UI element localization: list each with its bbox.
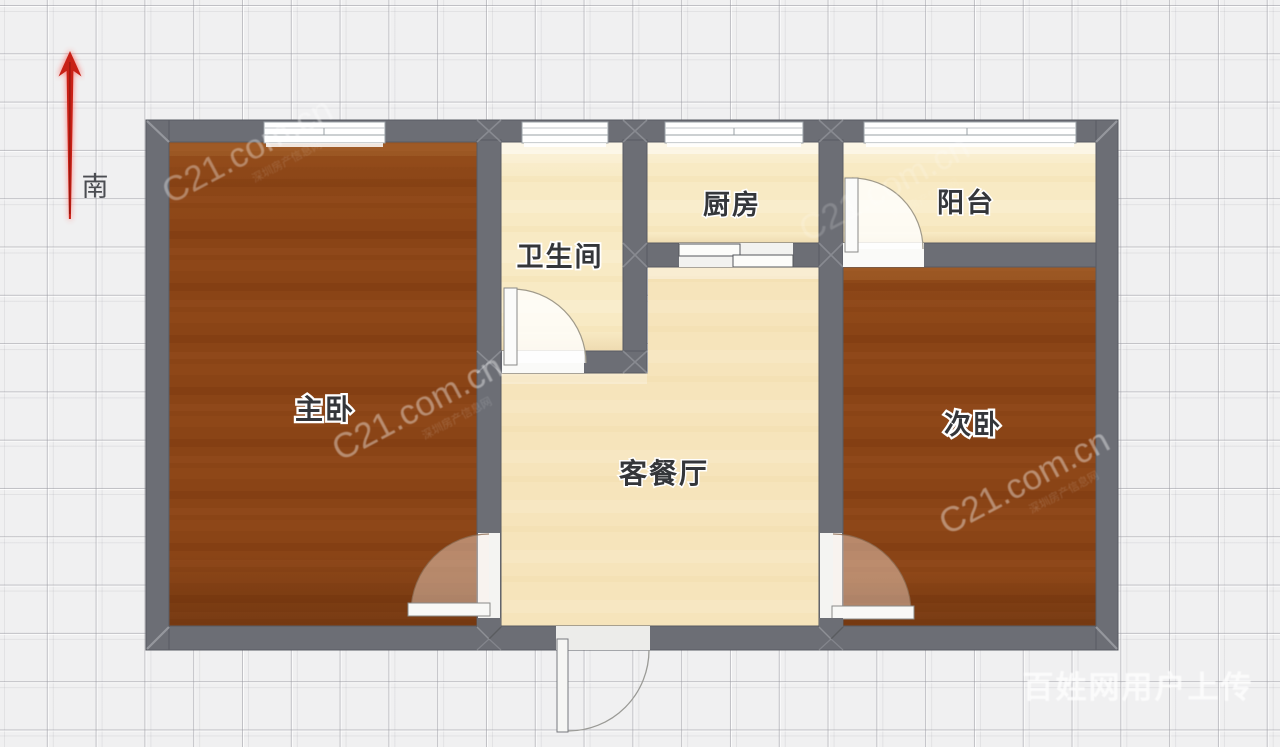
svg-text:百姓网用户上传: 百姓网用户上传 (1023, 670, 1254, 705)
svg-text:主卧: 主卧 (295, 394, 355, 425)
svg-text:客餐厅: 客餐厅 (619, 457, 709, 489)
svg-text:厨房: 厨房 (703, 190, 761, 220)
svg-text:次卧: 次卧 (944, 410, 1002, 440)
svg-text:南: 南 (82, 172, 109, 202)
svg-text:卫生间: 卫生间 (517, 242, 604, 272)
